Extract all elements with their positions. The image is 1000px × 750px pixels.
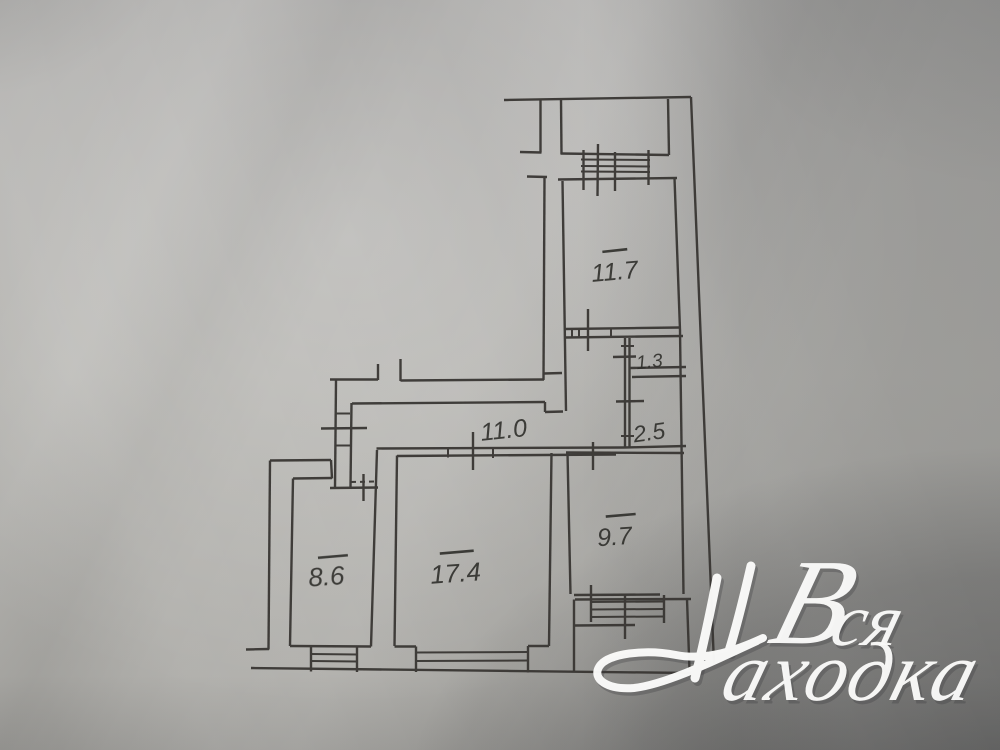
svg-text:8.6: 8.6 <box>307 560 346 592</box>
svg-text:11.7: 11.7 <box>590 256 640 288</box>
svg-text:1.3: 1.3 <box>635 350 664 374</box>
svg-text:9.7: 9.7 <box>596 522 634 552</box>
svg-text:2.5: 2.5 <box>631 417 667 447</box>
svg-text:аходка: аходка <box>713 626 991 719</box>
svg-text:11.0: 11.0 <box>479 414 529 447</box>
svg-text:17.4: 17.4 <box>429 556 482 589</box>
